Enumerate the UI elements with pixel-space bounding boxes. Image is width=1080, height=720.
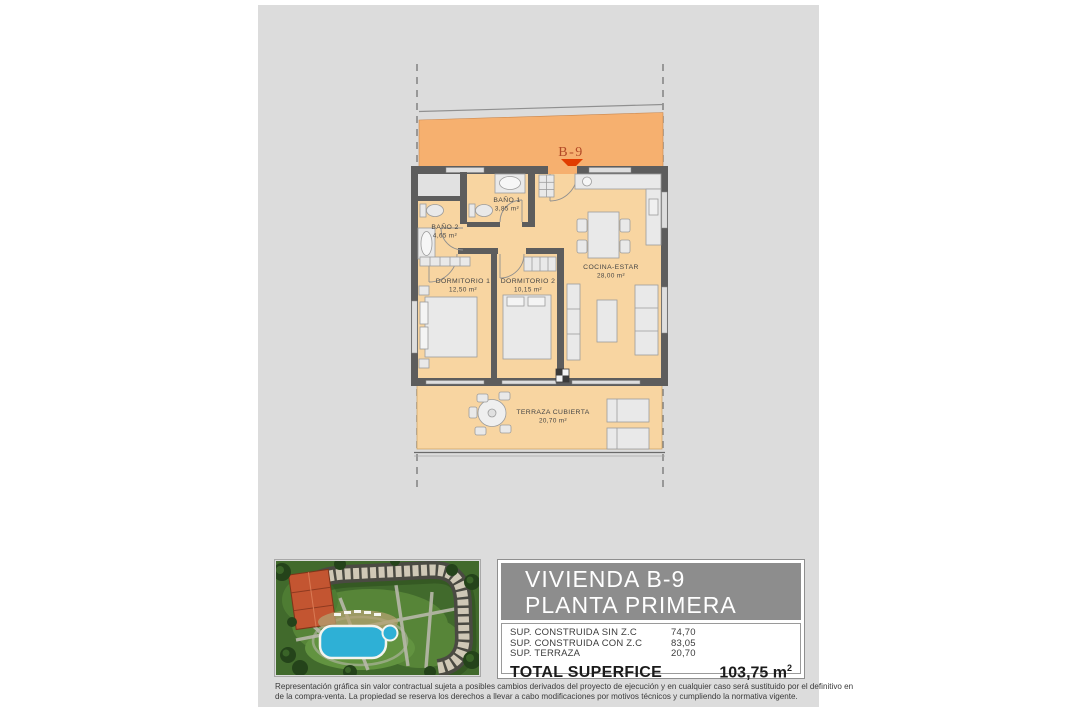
room-area-dorm1: 12,50 m² — [449, 287, 477, 294]
room-label-bano2: BAÑO 2 — [431, 222, 458, 231]
row-value: 74,70 — [671, 628, 696, 639]
room-label-bano1: BAÑO 1 — [493, 195, 520, 204]
room-area-terraza: 20,70 m² — [539, 418, 567, 425]
legal-disclaimer: Representación gráfica sin valor contrac… — [275, 682, 853, 702]
row-value: 20,70 — [671, 649, 696, 660]
table-row: SUP. TERRAZA 20,70 — [510, 649, 792, 660]
brochure-page: B-9 — [0, 0, 1080, 720]
structural-column — [556, 369, 569, 382]
room-label-dorm1: DORMITORIO 1 — [436, 278, 491, 285]
title-block-header: VIVIENDA B-9 PLANTA PRIMERA — [501, 563, 801, 620]
site-photo-frame — [274, 559, 481, 677]
title-line-2: PLANTA PRIMERA — [525, 592, 801, 618]
row-label: SUP. TERRAZA — [510, 649, 671, 660]
table-row: SUP. CONSTRUIDA SIN Z.C 74,70 — [510, 628, 792, 639]
room-label-cocina: COCINA-ESTAR — [583, 264, 639, 271]
disclaimer-line-1: Representación gráfica sin valor contrac… — [275, 682, 853, 692]
total-label: TOTAL SUPERFICE — [510, 664, 662, 682]
corridor-band — [419, 113, 663, 173]
unit-label: B-9 — [558, 145, 584, 160]
room-area-bano1: 3,85 m² — [495, 206, 519, 213]
room-area-cocina: 28,00 m² — [597, 273, 625, 280]
title-block: VIVIENDA B-9 PLANTA PRIMERA SUP. CONSTRU… — [497, 559, 805, 679]
slab-edge-line — [419, 105, 663, 112]
disclaimer-line-2: de la compra-venta. La propiedad se rese… — [275, 692, 853, 702]
room-label-dorm2: DORMITORIO 2 — [501, 278, 556, 285]
row-label: SUP. CONSTRUIDA SIN Z.C — [510, 628, 671, 639]
utility-gray-area — [418, 173, 460, 196]
total-row: TOTAL SUPERFICE 103,75 m2 — [510, 663, 792, 682]
entrance-gap — [548, 166, 577, 174]
room-area-dorm2: 10,15 m² — [514, 287, 542, 294]
room-label-terraza: TERRAZA CUBIERTA — [516, 409, 589, 416]
total-value: 103,75 m2 — [719, 663, 792, 682]
surface-table: SUP. CONSTRUIDA SIN Z.C 74,70 SUP. CONST… — [501, 623, 801, 674]
title-line-1: VIVIENDA B-9 — [525, 566, 801, 592]
room-area-bano2: 4,65 m² — [433, 233, 457, 240]
